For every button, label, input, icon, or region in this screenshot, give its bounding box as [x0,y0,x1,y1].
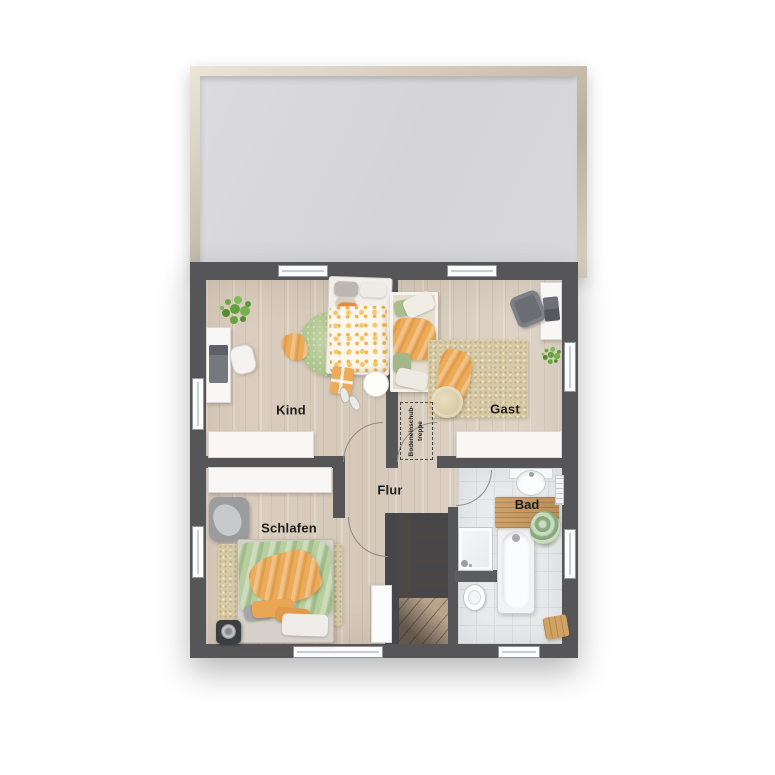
plant-gast [542,346,557,361]
wall-toilet-partition [455,570,497,582]
stair-banister [399,514,410,602]
floor-plan-canvas: Kind Gast Bodeneinschub-treppe Flur [0,0,775,775]
wardrobe-schlafen [208,467,332,493]
sink-bad [516,470,546,496]
window-bottom-bad [498,646,540,658]
shower-bad [458,527,493,571]
window-left-schlafen [192,526,204,578]
bed-schlafen [237,539,334,643]
window-top-kind [278,265,328,277]
stool-bad [542,614,569,640]
pouf-gast [431,386,463,418]
clothes-drape-schlafen [211,501,245,539]
sink-faucet [529,472,534,477]
bathtub-bad [497,526,535,614]
flat-roof-panel [200,76,577,268]
side-table-kind [363,371,389,397]
pillow-gast-white2 [394,367,429,391]
laptop-kind [209,345,228,383]
window-top-gast [447,265,497,277]
room-label-bad: Bad [515,497,540,512]
plant-kind [214,288,252,326]
window-right-gast [564,342,576,392]
window-left-kind [192,378,204,430]
toilet-bowl [468,590,481,605]
chair-schlafen [209,497,249,541]
flat-roof [190,66,587,278]
wall-schlafen-flur-stub [333,456,345,518]
sideboard-gast [456,431,562,458]
bathtub-faucet [512,534,520,542]
radiator-panel-flur [371,585,392,643]
window-right-bad [564,529,576,579]
toilet-bad [463,584,486,611]
speaker-cone [221,624,236,639]
room-label-kind: Kind [276,404,306,417]
pillow-kind-gray [334,281,359,297]
stair-treads [410,514,448,600]
bathtub-basin [502,531,530,609]
speaker-schlafen [216,620,241,644]
pillow-kind-white [360,282,387,298]
laptop-gast [543,296,560,321]
room-label-flur: Flur [377,484,402,497]
room-label-schlafen: Schlafen [261,522,317,535]
window-bottom-schlafen [293,646,383,658]
radiator-bad [555,475,564,505]
sideboard-kind [208,431,314,458]
stair-winder-steps [399,598,448,644]
pillow-gast-white1 [401,290,436,320]
room-label-gast: Gast [490,403,520,416]
pillow-schlafen-white [282,613,329,637]
bed-kind [325,276,392,376]
duvet-kind-floral [329,305,388,373]
shower-faucet [461,560,468,567]
attic-hatch: Bodeneinschub-treppe [400,402,433,460]
attic-hatch-label: Bodeneinschub-treppe [408,406,426,457]
